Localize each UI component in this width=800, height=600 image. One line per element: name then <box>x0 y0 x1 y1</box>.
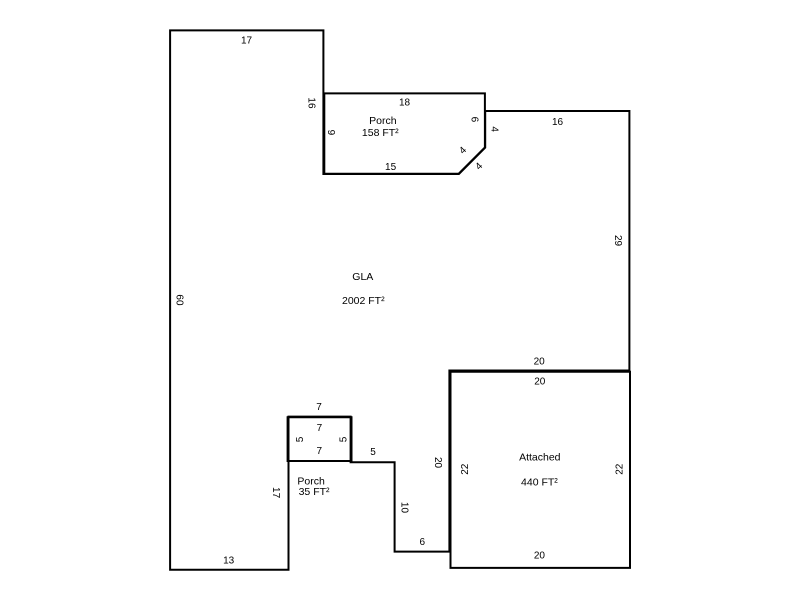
svg-text:22: 22 <box>460 463 471 475</box>
svg-text:9: 9 <box>325 130 336 136</box>
svg-text:158 FT²: 158 FT² <box>362 127 399 139</box>
svg-text:29: 29 <box>612 235 623 247</box>
svg-text:7: 7 <box>316 402 322 413</box>
svg-text:13: 13 <box>223 556 235 567</box>
svg-text:20: 20 <box>534 376 546 387</box>
svg-text:7: 7 <box>317 423 323 434</box>
svg-text:18: 18 <box>399 98 411 109</box>
svg-text:5: 5 <box>295 436 306 442</box>
svg-text:17: 17 <box>241 36 253 47</box>
svg-text:GLA: GLA <box>352 271 373 283</box>
svg-text:20: 20 <box>534 356 546 367</box>
svg-text:17: 17 <box>270 487 281 499</box>
svg-text:Attached: Attached <box>519 452 561 464</box>
svg-text:4: 4 <box>489 126 500 132</box>
svg-text:2002 FT²: 2002 FT² <box>342 295 385 307</box>
svg-text:15: 15 <box>385 162 397 173</box>
svg-text:10: 10 <box>399 502 410 514</box>
svg-text:20: 20 <box>432 457 443 469</box>
svg-text:60: 60 <box>174 294 185 306</box>
svg-text:16: 16 <box>306 97 317 109</box>
svg-text:20: 20 <box>534 551 546 562</box>
svg-text:6: 6 <box>469 117 480 123</box>
svg-text:Porch: Porch <box>369 115 397 127</box>
svg-text:16: 16 <box>552 117 564 128</box>
svg-text:7: 7 <box>317 446 323 457</box>
svg-text:22: 22 <box>615 463 626 475</box>
svg-text:5: 5 <box>370 447 376 458</box>
svg-text:5: 5 <box>339 436 350 442</box>
svg-text:35 FT²: 35 FT² <box>299 486 330 498</box>
svg-text:6: 6 <box>420 537 426 548</box>
svg-text:440 FT²: 440 FT² <box>521 477 558 489</box>
